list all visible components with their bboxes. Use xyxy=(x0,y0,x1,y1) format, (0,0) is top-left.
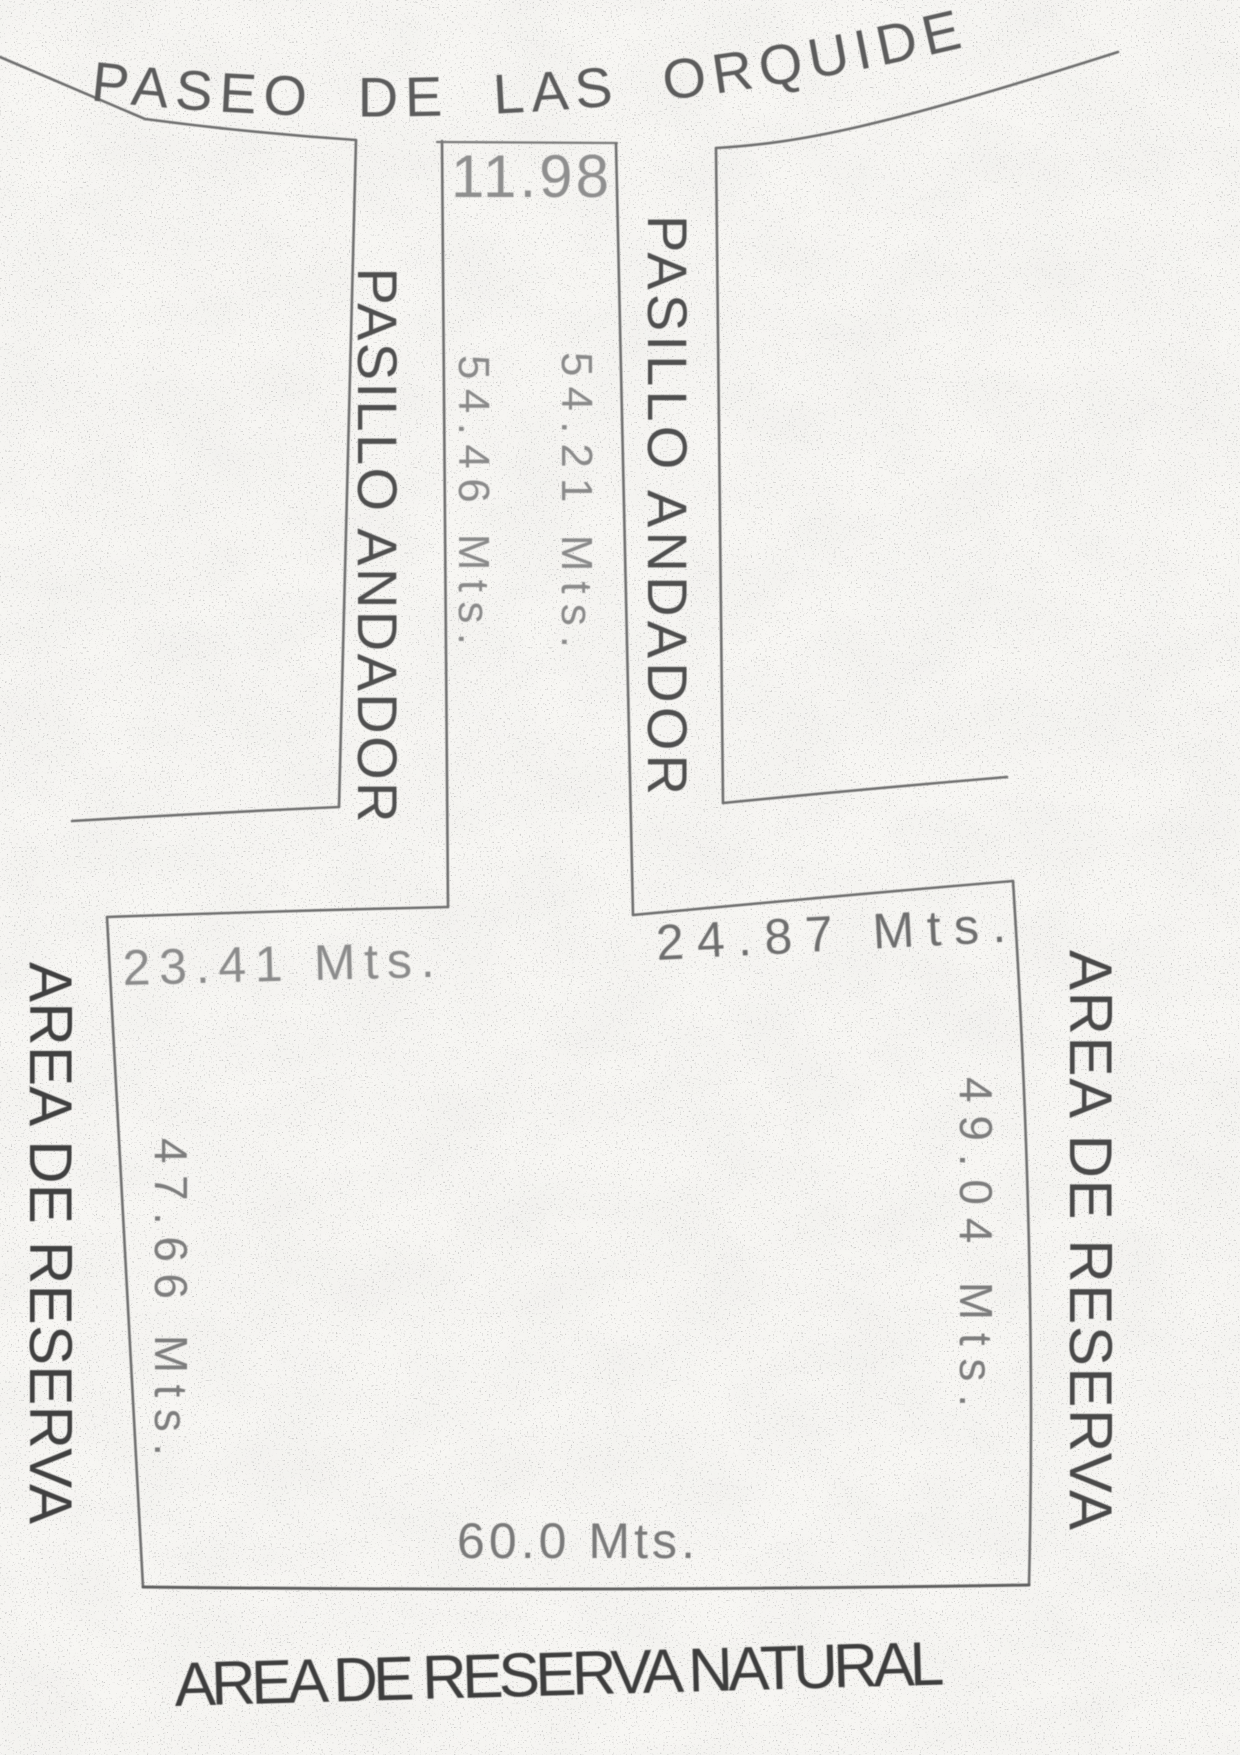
parcel-south-dimension: 60.0 Mts. xyxy=(457,1513,695,1569)
left-walkway-label: PASILLO ANDADOR xyxy=(346,268,409,823)
scanned-survey-page: PASEO DE LAS ORQUIDEAS 11.98 PASILLO AND… xyxy=(0,0,1240,1755)
corridor-left-length-dimension: 54.46 Mts. xyxy=(449,355,498,645)
parcel-north-left-dimension: 23.41 Mts. xyxy=(122,932,435,996)
parcel-west-dimension: 47.66 Mts. xyxy=(145,1138,197,1456)
reserve-area-label-west: AREA DE RESERVA xyxy=(17,962,84,1524)
parcel-east-dimension: 49.04 Mts. xyxy=(950,1077,1002,1407)
reserve-area-label-east: AREA DE RESERVA xyxy=(1057,950,1124,1530)
corridor-width-dimension: 11.98 xyxy=(451,143,609,210)
right-walkway-label: PASILLO ANDADOR xyxy=(636,215,699,795)
corridor-right-length-dimension: 54.21 Mts. xyxy=(552,352,601,648)
scan-speckle-noise xyxy=(0,0,1240,1755)
survey-plat-drawing: PASEO DE LAS ORQUIDEAS 11.98 PASILLO AND… xyxy=(0,0,1240,1755)
